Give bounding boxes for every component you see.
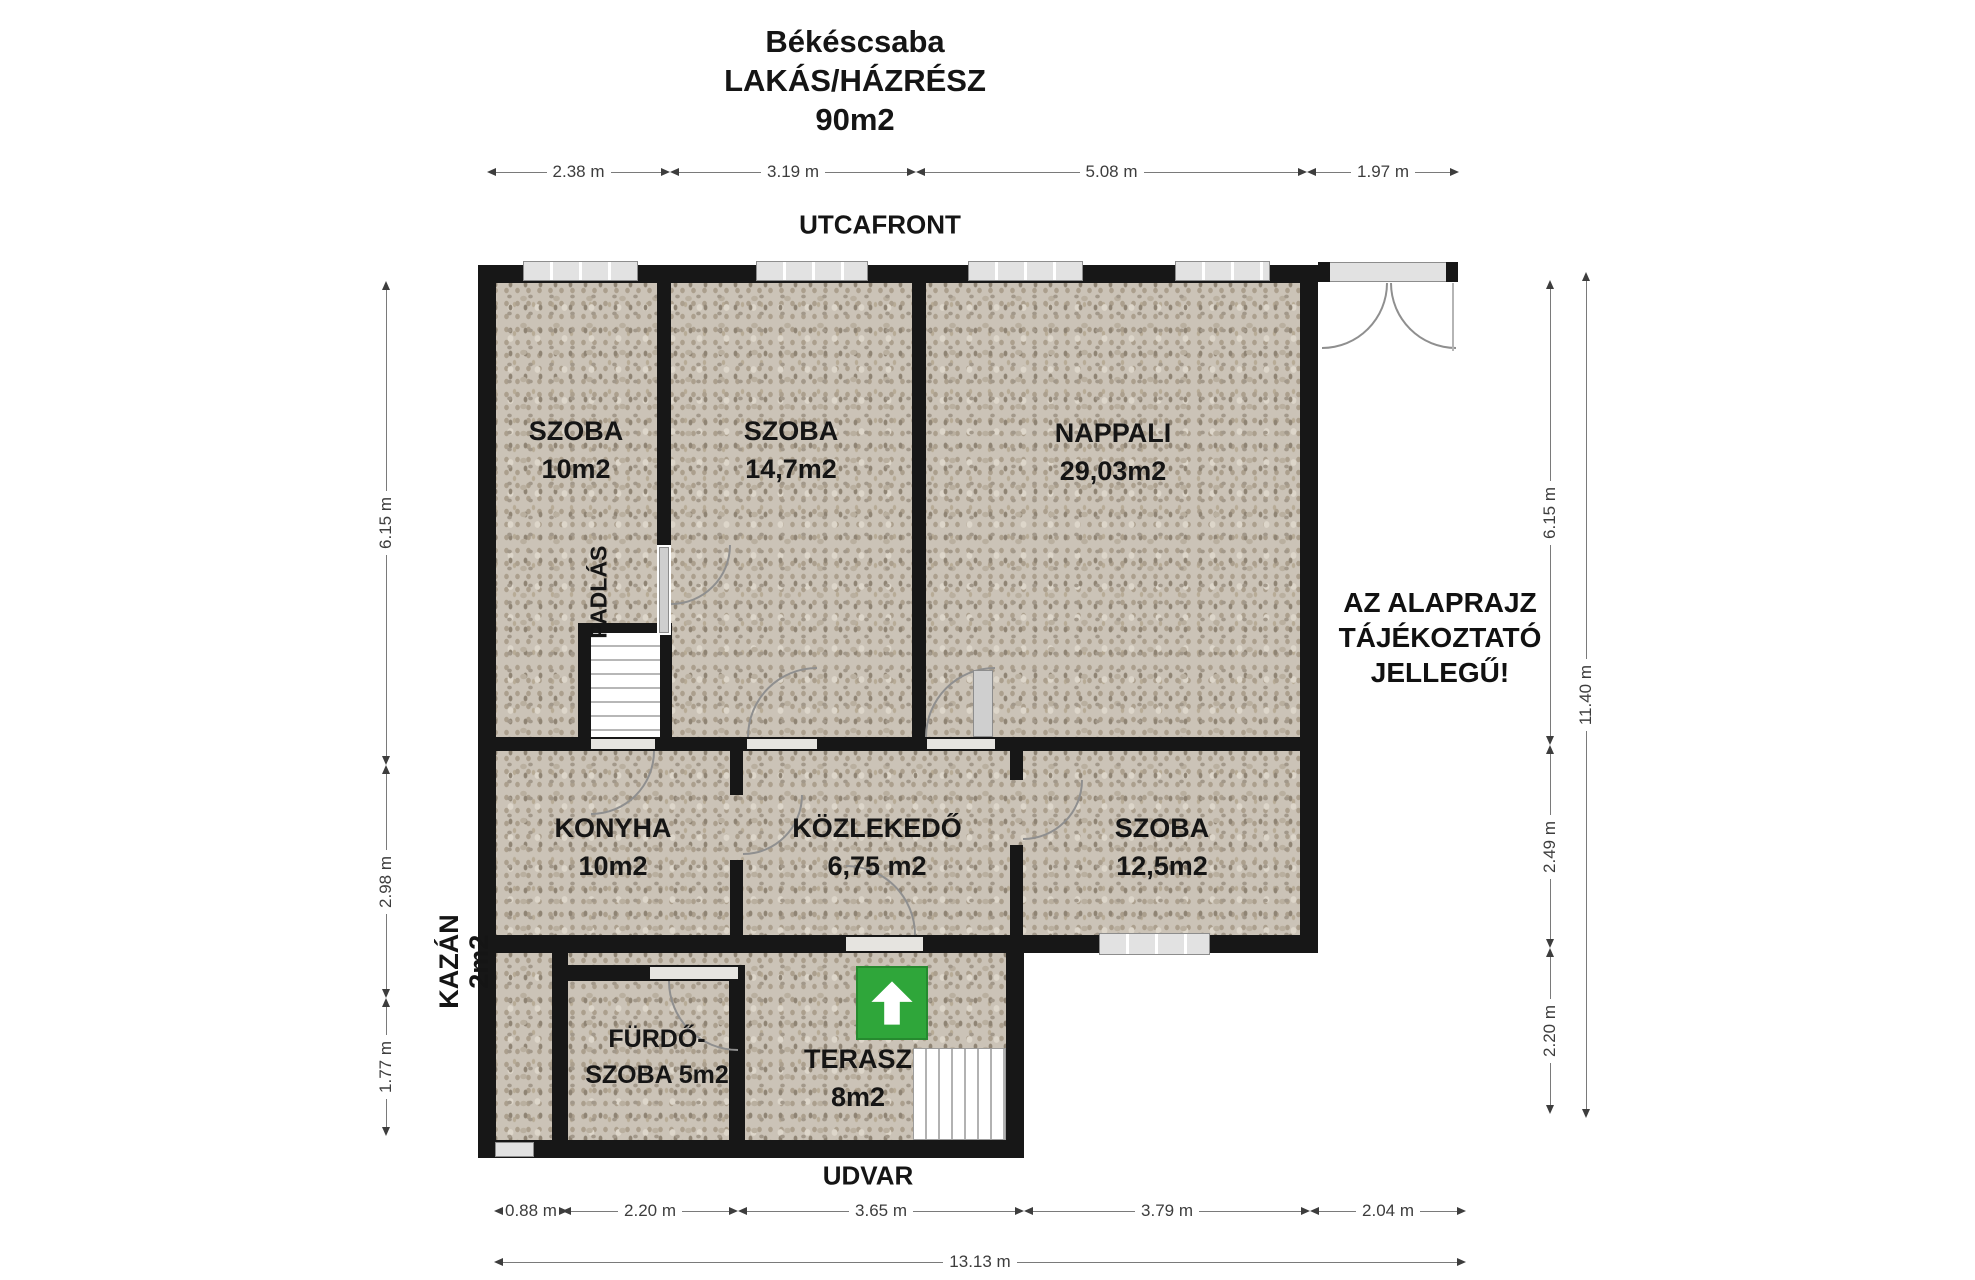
dim-bottom-3: 3.65 m [738, 1202, 1024, 1220]
dim-right-2: 2.49 m [1541, 745, 1559, 948]
dim-right-total: 11.40 m [1577, 272, 1595, 1118]
room-name: TERASZ [804, 1040, 912, 1078]
dim-top-4: 1.97 m [1307, 163, 1459, 181]
window-room3 [1099, 933, 1210, 955]
terrace-stairs [913, 1048, 1006, 1140]
window-livingroom-right [1175, 261, 1270, 281]
room-name: KÖZLEKEDŐ [792, 809, 962, 847]
room-name: KAZÁN [434, 914, 464, 1009]
room-label-padlas: PADLÁS [586, 546, 613, 639]
disclaimer-note: AZ ALAPRAJZ TÁJÉKOZTATÓ JELLEGŰ! [1339, 585, 1542, 690]
dim-bottom-5: 2.04 m [1310, 1202, 1466, 1220]
door-threshold-attic-kitchen [591, 739, 655, 749]
room-label-szoba1: SZOBA 10m2 [529, 412, 624, 488]
room-name: KONYHA [554, 809, 671, 847]
dim-right-1: 6.15 m [1541, 280, 1559, 745]
room-label-furdoszoba: FÜRDŐ- SZOBA 5m2 [585, 1021, 729, 1093]
entrance-door-jamb-left [1318, 262, 1330, 282]
room-name: PADLÁS [586, 546, 613, 639]
dim-value: 2.20 m [618, 1201, 682, 1221]
door-threshold-terrace [846, 937, 923, 951]
floor-plan-canvas: Békéscsaba LAKÁS/HÁZRÉSZ 90m2 UTCAFRONT … [0, 0, 1975, 1280]
wall-outer-left [478, 265, 496, 1158]
yard-label: UDVAR [823, 1161, 914, 1192]
dim-top-2: 3.19 m [670, 163, 916, 181]
dim-bottom-4: 3.79 m [1024, 1202, 1310, 1220]
door-leaf-livingroom [973, 670, 993, 737]
dim-value: 2.38 m [547, 162, 611, 182]
room-area: 10m2 [529, 450, 624, 488]
room-label-kozlekedo: KÖZLEKEDŐ 6,75 m2 [792, 809, 962, 885]
room-name: SZOBA [1115, 809, 1210, 847]
dim-value: 11.40 m [1576, 659, 1596, 731]
dim-left-1: 6.15 m [377, 281, 395, 765]
wall-terrace-right [1006, 953, 1024, 1158]
room-area: 2m2 [464, 914, 494, 1009]
door-threshold-room2 [747, 739, 817, 749]
dim-value: 13.13 m [943, 1252, 1016, 1272]
entrance-door-swing-right [1390, 283, 1456, 349]
door-leaf-room1-room2 [659, 547, 669, 633]
wall-hall-room3-upper [1010, 751, 1023, 780]
street-front-label: UTCAFRONT [799, 210, 961, 241]
room-name: FÜRDŐ- [585, 1021, 729, 1057]
dim-top-3: 5.08 m [916, 163, 1307, 181]
room-area: 8m2 [804, 1078, 912, 1116]
page-title: Békéscsaba LAKÁS/HÁZRÉSZ 90m2 [724, 22, 986, 139]
dim-value: 5.08 m [1080, 162, 1144, 182]
wall-attic-right [660, 623, 672, 737]
room-label-szoba2: SZOBA 14,7m2 [744, 412, 839, 488]
dim-right-3: 2.20 m [1541, 948, 1559, 1114]
room-name: NAPPALI [1055, 414, 1172, 452]
title-type: LAKÁS/HÁZRÉSZ [724, 61, 986, 100]
dim-value: 2.49 m [1540, 815, 1560, 879]
door-threshold-bathroom [650, 967, 738, 979]
wall-hall-room3-lower [1010, 845, 1023, 935]
wall-room2-livingroom [912, 283, 926, 737]
dim-value: 0.88 m [503, 1201, 559, 1221]
room-label-nappali: NAPPALI 29,03m2 [1055, 414, 1172, 490]
room-label-terasz: TERASZ 8m2 [804, 1040, 912, 1116]
room-name: SZOBA [529, 412, 624, 450]
entrance-door-frame [1318, 262, 1458, 282]
room-label-konyha: KONYHA 10m2 [554, 809, 671, 885]
dim-value: 1.97 m [1351, 162, 1415, 182]
room-area: SZOBA 5m2 [585, 1057, 729, 1093]
disclaimer-line: TÁJÉKOZTATÓ [1339, 620, 1542, 655]
dim-left-3: 1.77 m [377, 998, 395, 1136]
room-area: 29,03m2 [1055, 452, 1172, 490]
dim-value: 1.77 m [376, 1035, 396, 1099]
entrance-arrow-icon [856, 966, 928, 1040]
room-label-szoba3: SZOBA 12,5m2 [1115, 809, 1210, 885]
dim-value: 3.79 m [1135, 1201, 1199, 1221]
entrance-door-swing-left [1322, 283, 1388, 349]
room-area: 14,7m2 [744, 450, 839, 488]
dim-bottom-1: 0.88 m [494, 1202, 562, 1220]
room-label-kazan: KAZÁN 2m2 [434, 914, 494, 1009]
wall-kitchen-hall-upper [730, 751, 743, 795]
wall-outer-bottom [478, 1140, 1024, 1158]
entrance-door-frame-edge [1452, 283, 1454, 351]
disclaimer-line: JELLEGŰ! [1339, 655, 1542, 690]
window-room2 [756, 261, 868, 281]
dim-value: 6.15 m [376, 491, 396, 555]
attic-ladder [591, 633, 660, 737]
dim-value: 3.65 m [849, 1201, 913, 1221]
wall-outer-right [1300, 265, 1318, 953]
room-area: 6,75 m2 [792, 847, 962, 885]
door-threshold-livingroom [927, 739, 995, 749]
wall-boiler-bath [552, 953, 568, 1140]
wall-attic-left [578, 623, 591, 737]
window-room1 [523, 261, 638, 281]
dim-value: 6.15 m [1540, 481, 1560, 545]
window-livingroom-left [968, 261, 1083, 281]
dim-value: 2.04 m [1356, 1201, 1420, 1221]
room-area: 10m2 [554, 847, 671, 885]
title-city: Békéscsaba [724, 22, 986, 61]
dim-bottom-2: 2.20 m [562, 1202, 738, 1220]
room-name: SZOBA [744, 412, 839, 450]
dim-value: 2.98 m [376, 850, 396, 914]
dim-value: 2.20 m [1540, 999, 1560, 1063]
room-area: 12,5m2 [1115, 847, 1210, 885]
wall-kitchen-hall-lower [730, 860, 743, 935]
up-arrow-icon [866, 975, 918, 1031]
dim-left-2: 2.98 m [377, 765, 395, 998]
disclaimer-line: AZ ALAPRAJZ [1339, 585, 1542, 620]
title-area: 90m2 [724, 100, 986, 139]
dim-bottom-total: 13.13 m [494, 1253, 1466, 1271]
window-boiler [495, 1142, 534, 1157]
dim-value: 3.19 m [761, 162, 825, 182]
dim-top-1: 2.38 m [487, 163, 670, 181]
entrance-door-jamb-right [1446, 262, 1458, 282]
